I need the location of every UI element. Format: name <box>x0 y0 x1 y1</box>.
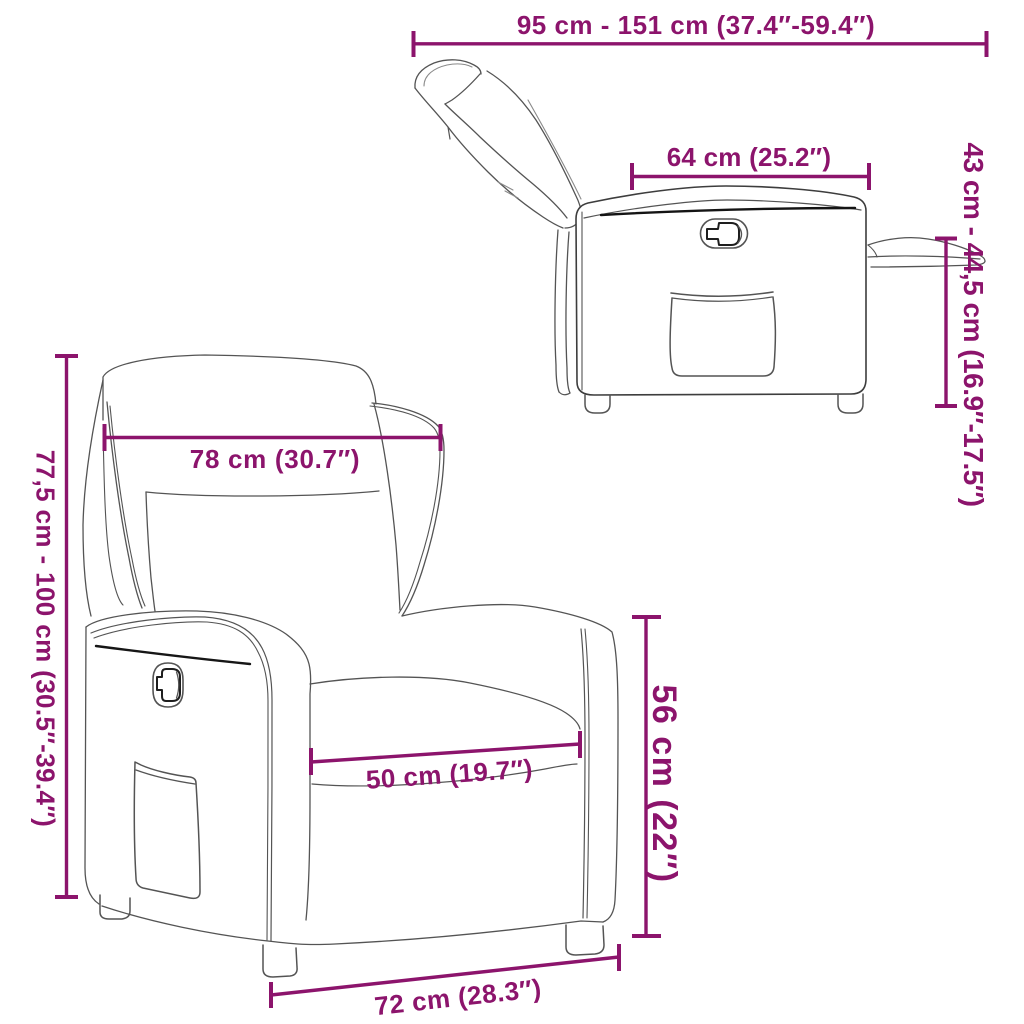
svg-text:78 cm (30.7″): 78 cm (30.7″) <box>190 444 360 474</box>
svg-text:43 cm - 44,5 cm (16.9″-17.5″): 43 cm - 44,5 cm (16.9″-17.5″) <box>958 142 989 506</box>
svg-text:77,5 cm - 100 cm (30.5″-39.4″): 77,5 cm - 100 cm (30.5″-39.4″) <box>31 450 61 827</box>
svg-text:95 cm - 151 cm (37.4″-59.4″): 95 cm - 151 cm (37.4″-59.4″) <box>517 10 875 40</box>
svg-text:64 cm (25.2″): 64 cm (25.2″) <box>667 142 832 172</box>
svg-text:56 cm (22″): 56 cm (22″) <box>645 684 683 883</box>
